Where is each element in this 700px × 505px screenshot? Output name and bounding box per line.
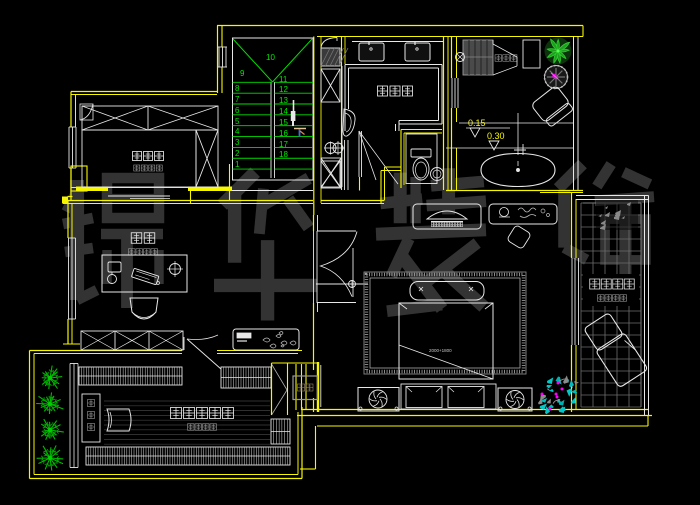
svg-text:1: 1 xyxy=(235,160,240,169)
svg-text:13: 13 xyxy=(279,96,288,105)
svg-text:18: 18 xyxy=(279,150,288,159)
svg-text:5: 5 xyxy=(235,117,240,126)
svg-text:14: 14 xyxy=(279,107,288,116)
svg-text:8: 8 xyxy=(235,84,240,93)
svg-text:9: 9 xyxy=(240,69,245,78)
svg-text:0.30: 0.30 xyxy=(487,131,505,141)
svg-text:11: 11 xyxy=(279,75,288,84)
svg-text:15: 15 xyxy=(279,118,288,127)
svg-text:6: 6 xyxy=(235,106,240,115)
svg-text:10: 10 xyxy=(266,53,275,62)
svg-text:4: 4 xyxy=(235,127,240,136)
svg-text:2000+1800: 2000+1800 xyxy=(429,348,452,353)
svg-text:12: 12 xyxy=(279,85,288,94)
svg-text:17: 17 xyxy=(279,140,288,149)
svg-text:3: 3 xyxy=(235,138,240,147)
svg-text:16: 16 xyxy=(279,129,288,138)
svg-text:2: 2 xyxy=(235,149,240,158)
svg-text:7: 7 xyxy=(235,95,240,104)
